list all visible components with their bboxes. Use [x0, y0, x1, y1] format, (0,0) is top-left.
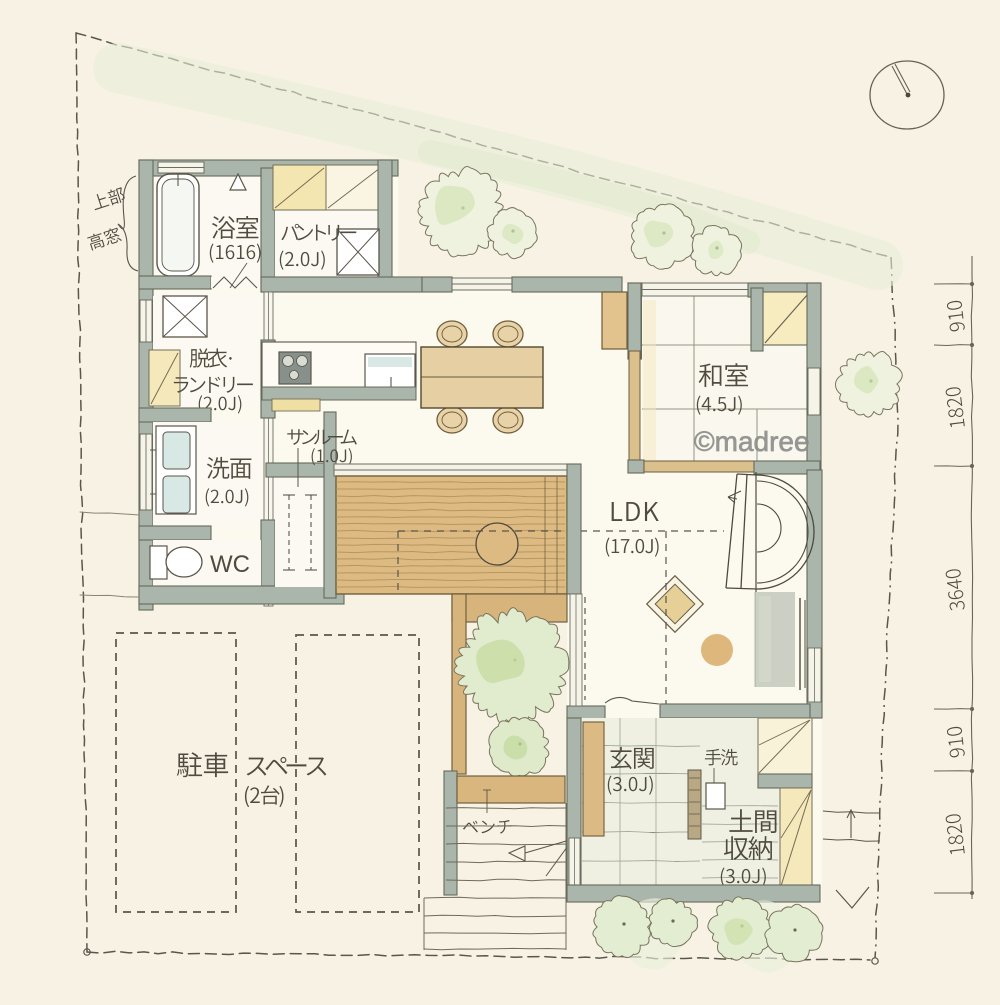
- svg-text:©madree: ©madree: [694, 426, 810, 457]
- svg-text:WC: WC: [210, 551, 250, 578]
